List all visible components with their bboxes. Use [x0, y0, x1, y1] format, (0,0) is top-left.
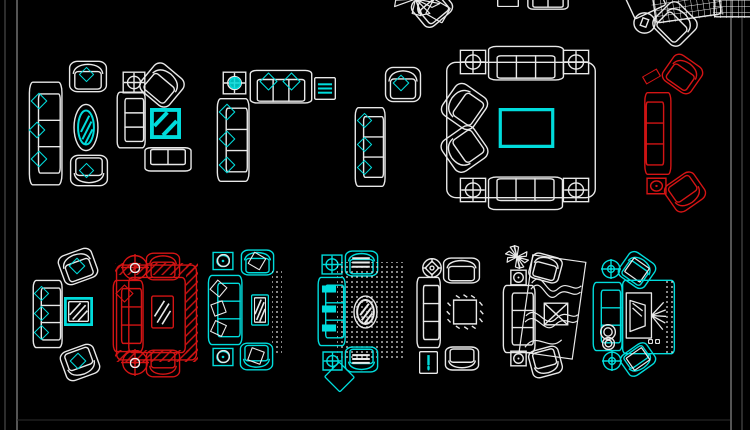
set1-armchair[interactable] — [71, 155, 108, 185]
set12-side-table[interactable] — [511, 270, 526, 285]
set4-pillow[interactable] — [357, 137, 372, 152]
set1-pillow[interactable] — [79, 67, 94, 82]
set11-sofa[interactable] — [417, 277, 440, 347]
set13-knob[interactable] — [648, 339, 653, 344]
set5-corner-table[interactable] — [563, 50, 588, 73]
set12-side-table[interactable] — [511, 351, 526, 366]
set7-pillow[interactable] — [69, 258, 85, 274]
set13-target[interactable] — [602, 351, 622, 371]
set5-coffee-table[interactable] — [500, 110, 552, 147]
set10-seat[interactable] — [322, 324, 336, 331]
set10-seat[interactable] — [322, 305, 336, 312]
set11-lamp[interactable] — [427, 355, 430, 370]
cad-canvas[interactable] — [0, 0, 750, 430]
set4-pillow[interactable] — [393, 75, 409, 91]
set13-tv[interactable] — [626, 293, 666, 338]
set9-curtain-strip[interactable] — [272, 268, 282, 354]
set10-seat[interactable] — [322, 285, 336, 292]
table-partial[interactable] — [498, 0, 519, 7]
set1-armchair[interactable] — [70, 61, 107, 91]
set4-armchair[interactable] — [386, 67, 421, 101]
set2-rug[interactable] — [152, 110, 179, 137]
set6-armchair[interactable] — [660, 51, 706, 96]
rug-grid[interactable] — [713, 0, 750, 18]
set5-corner-table[interactable] — [460, 50, 485, 73]
set3-pillow[interactable] — [260, 73, 277, 90]
set3-ottoman-stripes[interactable] — [318, 84, 332, 92]
armchair-partial[interactable] — [409, 0, 456, 30]
set11-table[interactable] — [447, 295, 483, 330]
set4-pillow[interactable] — [357, 160, 372, 175]
set8-rug-hatch[interactable] — [115, 263, 198, 275]
set3-pillow[interactable] — [283, 73, 300, 90]
set3-sofa[interactable] — [250, 70, 311, 103]
set8-pillow[interactable] — [116, 285, 133, 302]
set9-armchair[interactable] — [240, 343, 272, 370]
set2-sofa[interactable] — [117, 92, 145, 148]
cad-drawing-canvas[interactable] — [0, 0, 750, 430]
set9-cushion[interactable] — [248, 348, 265, 365]
set4-pillow[interactable] — [357, 113, 372, 128]
set11-chair[interactable] — [444, 258, 480, 283]
set8-table-glass[interactable] — [155, 301, 171, 325]
set1-pillow[interactable] — [29, 122, 45, 138]
set3-pillow[interactable] — [219, 131, 235, 147]
set13-knob[interactable] — [655, 339, 660, 344]
set12-plant[interactable] — [506, 246, 529, 269]
set2-sofa-2seat[interactable] — [145, 148, 191, 171]
set5-armchair[interactable] — [438, 122, 491, 175]
set1-oval-stripes[interactable] — [78, 110, 94, 144]
set5-sofa-top[interactable] — [489, 46, 564, 79]
set9-cushion[interactable] — [248, 252, 266, 270]
set10-side-table[interactable] — [325, 362, 355, 392]
set11-medallion-table[interactable] — [423, 259, 441, 277]
set5-sofa-bottom[interactable] — [489, 177, 563, 210]
set13-media-shelf[interactable] — [666, 280, 676, 354]
set6-tray[interactable] — [642, 69, 660, 84]
set3-corner-dot[interactable] — [229, 77, 240, 88]
set6-armchair[interactable] — [662, 169, 709, 215]
set11-chair[interactable] — [445, 347, 478, 370]
set12-armchair[interactable] — [527, 345, 563, 380]
set8-rug-hatch[interactable] — [186, 263, 198, 362]
set6-sofa[interactable] — [645, 93, 671, 175]
set13-target[interactable] — [601, 259, 621, 279]
set7-armchair[interactable] — [56, 246, 99, 286]
sofa-partial[interactable] — [528, 0, 568, 9]
set7-rug-hatch[interactable] — [70, 303, 88, 321]
set9-table-glass[interactable] — [255, 300, 265, 322]
set6-side-table[interactable] — [647, 178, 666, 193]
set7-armchair[interactable] — [58, 342, 101, 382]
set3-pillow[interactable] — [219, 104, 235, 120]
set13-armchair[interactable] — [618, 340, 658, 378]
